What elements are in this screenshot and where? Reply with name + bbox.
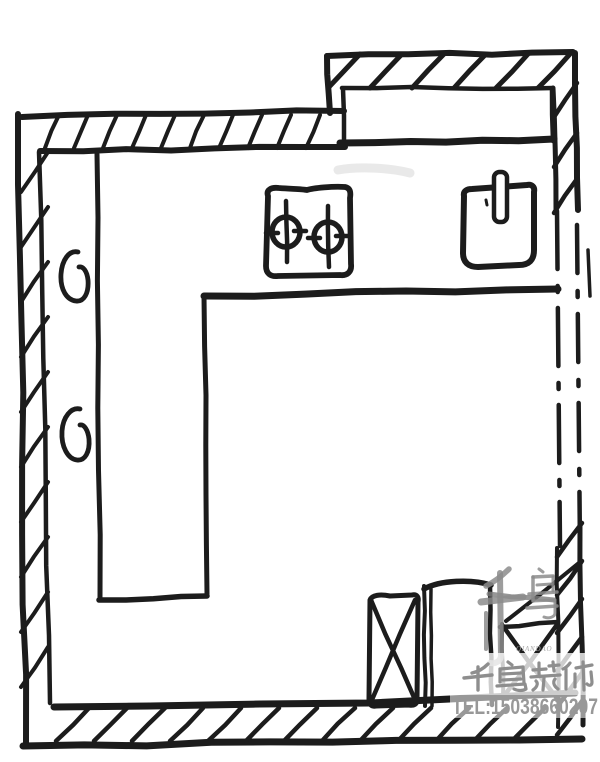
svg-text:QIANDAO: QIANDAO [516,645,552,653]
svg-text:TEL:15038660207: TEL:15038660207 [452,694,598,719]
